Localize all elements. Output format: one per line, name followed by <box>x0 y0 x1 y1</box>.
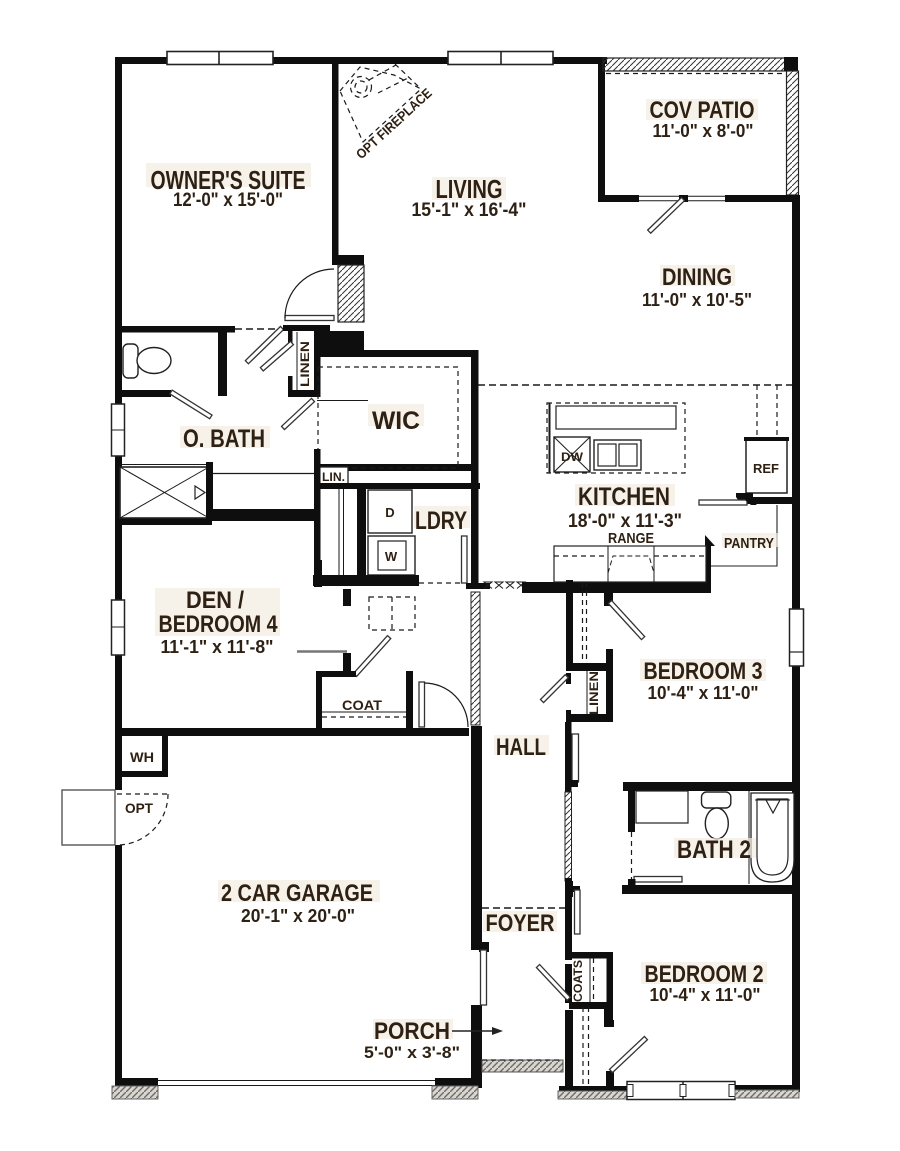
svg-text:15'-1" x 16'-4": 15'-1" x 16'-4" <box>412 200 527 221</box>
svg-text:O. BATH: O. BATH <box>183 425 265 453</box>
svg-text:DW: DW <box>561 450 584 464</box>
svg-text:LIN.: LIN. <box>322 470 345 484</box>
svg-text:HALL: HALL <box>496 734 546 761</box>
svg-text:10'-4" x 11'-0": 10'-4" x 11'-0" <box>648 683 759 703</box>
svg-text:WH: WH <box>130 749 154 765</box>
svg-text:PANTRY: PANTRY <box>724 535 774 552</box>
svg-text:LINEN: LINEN <box>298 341 312 387</box>
svg-text:COV PATIO: COV PATIO <box>650 97 755 124</box>
svg-text:18'-0" x 11'-3": 18'-0" x 11'-3" <box>568 511 682 532</box>
svg-text:PORCH: PORCH <box>374 1018 450 1045</box>
svg-text:REF: REF <box>753 461 779 476</box>
svg-text:OPT: OPT <box>125 800 153 816</box>
svg-text:12'-0" x 15'-0": 12'-0" x 15'-0" <box>173 190 283 211</box>
svg-text:11'-1" x 11'-8": 11'-1" x 11'-8" <box>161 637 274 657</box>
svg-text:W: W <box>385 549 398 564</box>
svg-text:BATH 2: BATH 2 <box>677 836 751 864</box>
svg-text:20'-1" x 20'-0": 20'-1" x 20'-0" <box>241 906 355 926</box>
svg-text:LDRY: LDRY <box>415 507 467 535</box>
svg-text:WIC: WIC <box>372 407 420 435</box>
svg-text:BEDROOM 3: BEDROOM 3 <box>644 658 763 685</box>
svg-text:5'-0" x 3'-8": 5'-0" x 3'-8" <box>364 1043 460 1062</box>
svg-text:10'-4" x 11'-0": 10'-4" x 11'-0" <box>650 985 761 1005</box>
svg-text:DEN /: DEN / <box>186 587 244 614</box>
svg-text:RANGE: RANGE <box>608 530 654 547</box>
svg-text:D: D <box>385 505 394 520</box>
svg-text:KITCHEN: KITCHEN <box>578 483 670 511</box>
svg-text:2 CAR GARAGE: 2 CAR GARAGE <box>221 880 373 907</box>
svg-text:11'-0" x 10'-5": 11'-0" x 10'-5" <box>642 290 752 310</box>
svg-text:COAT: COAT <box>342 697 382 713</box>
svg-text:11'-0" x 8'-0": 11'-0" x 8'-0" <box>653 121 754 141</box>
svg-text:LINEN: LINEN <box>587 671 601 715</box>
svg-text:FOYER: FOYER <box>486 910 555 937</box>
svg-text:DINING: DINING <box>662 264 732 291</box>
svg-text:BEDROOM 4: BEDROOM 4 <box>159 611 279 638</box>
svg-text:COATS: COATS <box>571 960 585 1002</box>
svg-text:BEDROOM 2: BEDROOM 2 <box>645 961 764 988</box>
